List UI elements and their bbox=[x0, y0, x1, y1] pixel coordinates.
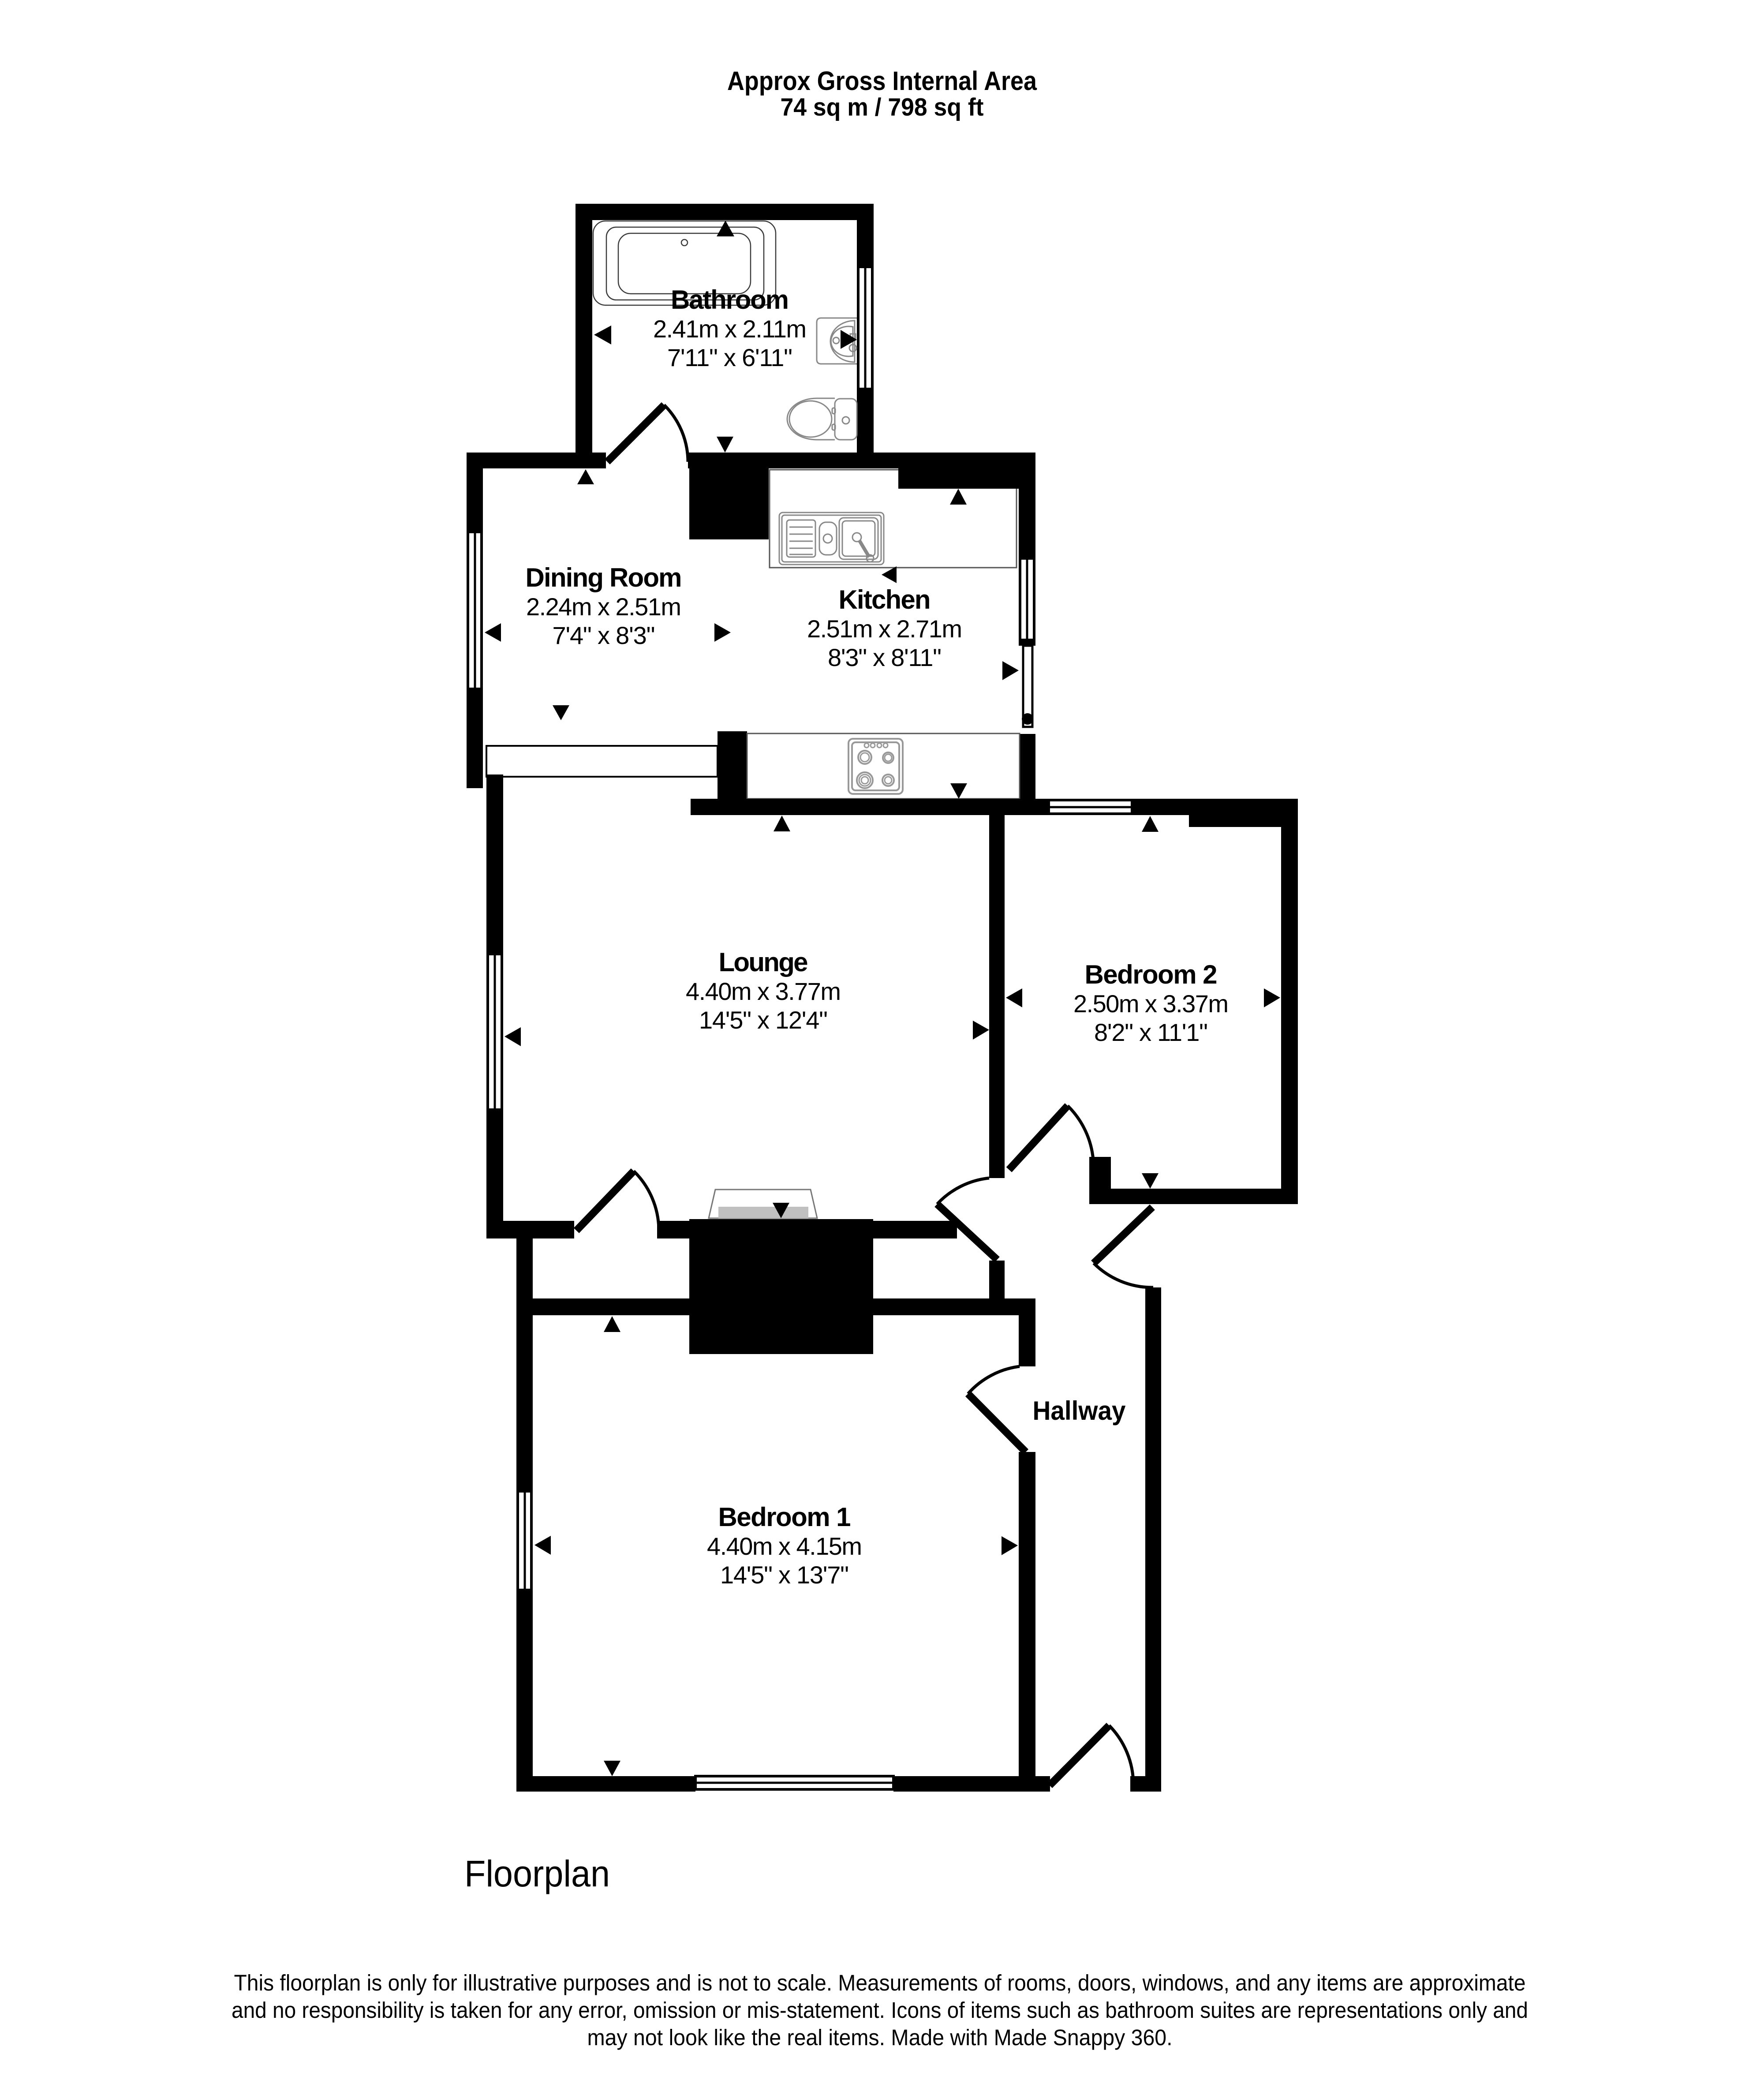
svg-text:This floorplan is only for ill: This floorplan is only for illustrative … bbox=[234, 1970, 1526, 1995]
svg-text:2.50m x 3.37m: 2.50m x 3.37m bbox=[1073, 990, 1229, 1018]
svg-text:7'4" x 8'3": 7'4" x 8'3" bbox=[553, 621, 655, 649]
svg-text:2.41m x 2.11m: 2.41m x 2.11m bbox=[653, 315, 807, 343]
svg-text:and no responsibility is taken: and no responsibility is taken for any e… bbox=[232, 1998, 1528, 2023]
svg-text:8'3" x 8'11": 8'3" x 8'11" bbox=[828, 644, 942, 671]
svg-text:7'11" x 6'11": 7'11" x 6'11" bbox=[667, 344, 792, 371]
svg-text:Kitchen: Kitchen bbox=[839, 585, 931, 614]
svg-text:Bedroom 1: Bedroom 1 bbox=[718, 1502, 851, 1532]
svg-text:14'5" x 13'7": 14'5" x 13'7" bbox=[720, 1561, 849, 1589]
svg-text:2.51m x 2.71m: 2.51m x 2.71m bbox=[807, 615, 962, 643]
svg-text:8'2" x 11'1": 8'2" x 11'1" bbox=[1094, 1018, 1208, 1046]
svg-text:74 sq m / 798 sq ft: 74 sq m / 798 sq ft bbox=[781, 93, 984, 121]
svg-text:Approx Gross Internal Area: Approx Gross Internal Area bbox=[727, 66, 1037, 96]
svg-text:Lounge: Lounge bbox=[719, 947, 808, 977]
svg-text:2.24m x 2.51m: 2.24m x 2.51m bbox=[526, 593, 681, 621]
svg-text:Floorplan: Floorplan bbox=[464, 1853, 610, 1894]
svg-text:14'5" x 12'4": 14'5" x 12'4" bbox=[699, 1006, 828, 1034]
svg-text:may not look like the real ite: may not look like the real items. Made w… bbox=[587, 2025, 1173, 2050]
svg-text:Hallway: Hallway bbox=[1033, 1396, 1126, 1426]
svg-text:4.40m x 4.15m: 4.40m x 4.15m bbox=[707, 1532, 862, 1560]
svg-text:Bathroom: Bathroom bbox=[671, 285, 789, 314]
svg-text:Dining Room: Dining Room bbox=[526, 563, 682, 592]
svg-text:4.40m x 3.77m: 4.40m x 3.77m bbox=[686, 977, 841, 1005]
svg-text:Bedroom 2: Bedroom 2 bbox=[1085, 960, 1218, 989]
